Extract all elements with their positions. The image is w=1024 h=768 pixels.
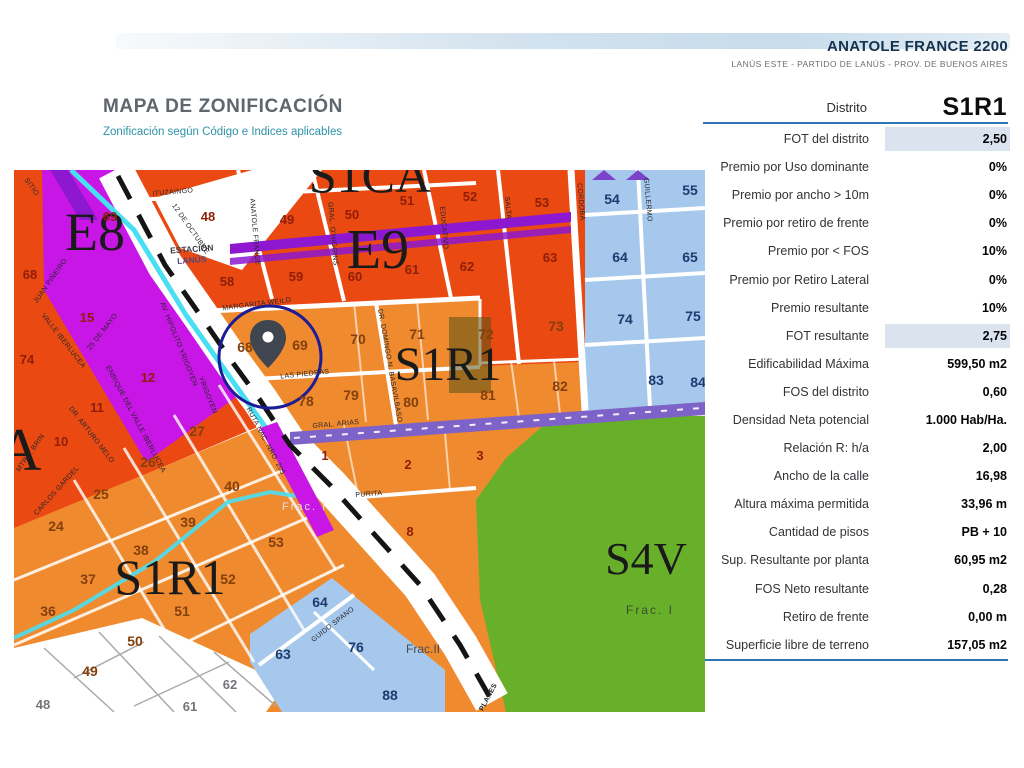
table-row: Cantidad de pisosPB + 10: [703, 518, 1010, 546]
parcel-number: 63: [275, 646, 291, 662]
zoning-indicators-panel: Distrito S1R1 FOT del distrito2,50 Premi…: [703, 92, 1010, 661]
table-row: Superficie libre de terreno157,05 m2: [703, 631, 1010, 659]
parcel-number: 68: [237, 339, 253, 355]
table-row: Altura máxima permitida33,96 m: [703, 490, 1010, 518]
parcel-number: 72: [478, 326, 494, 342]
parcel-number: 49: [82, 663, 98, 679]
table-row: Premio por Retiro Lateral0%: [703, 265, 1010, 293]
parcel-number: 70: [350, 331, 366, 347]
parcel-number: 83: [648, 372, 664, 388]
frac-label-road: Frac. I: [282, 501, 327, 513]
parcel-number: 68: [23, 267, 37, 282]
station-name-line2: LANÚS: [177, 253, 207, 266]
panel-bottom-rule: [703, 659, 1008, 661]
parcel-number: 62: [460, 259, 474, 274]
property-address: ANATOLE FRANCE 2200: [508, 38, 1008, 55]
parcel-number: 65: [682, 249, 698, 265]
parcel-number: 76: [348, 639, 364, 655]
district-row: Distrito S1R1: [703, 92, 1010, 122]
district-value: S1R1: [883, 93, 1010, 122]
listing-zoning-sheet: ANATOLE FRANCE 2200 LANÚS ESTE - PARTIDO…: [0, 0, 1024, 768]
table-row: Premio por Uso dominante0%: [703, 153, 1010, 181]
zone-label-s1r1-mid: S1R1: [395, 338, 502, 391]
parcel-number: 26: [140, 454, 156, 470]
parcel-number: 81: [480, 387, 496, 403]
parcel-number: 71: [409, 326, 425, 342]
parcel-number: 39: [180, 514, 196, 530]
table-row: Densidad Neta potencial1.000 Hab/Ha.: [703, 406, 1010, 434]
page-subtitle: Zonificación según Código e Indices apli…: [103, 126, 342, 138]
panel-top-rule: [703, 122, 1008, 124]
parcel-number: 36: [40, 603, 56, 619]
parcel-number: 38: [133, 542, 149, 558]
table-row: Sup. Resultante por planta60,95 m2: [703, 546, 1010, 574]
parcel-number: 52: [463, 189, 477, 204]
parcel-number: 75: [685, 308, 701, 324]
parcel-number: 80: [403, 394, 419, 410]
parcel-number: 82: [552, 378, 568, 394]
parcel-number: 54: [604, 191, 620, 207]
parcel-number: 62: [223, 677, 237, 692]
parcel-number: 3: [476, 448, 483, 463]
parcel-number: 64: [612, 249, 628, 265]
property-location: LANÚS ESTE - PARTIDO DE LANÚS - PROV. DE…: [408, 59, 1008, 69]
parcel-number: 58: [220, 274, 234, 289]
parcel-number: 63: [543, 250, 557, 265]
parcel-number: 2: [404, 457, 411, 472]
table-row: Relación R: h/a2,00: [703, 434, 1010, 462]
parcel-number: 55: [682, 182, 698, 198]
table-row: Retiro de frente0,00 m: [703, 603, 1010, 631]
parcel-number: 51: [400, 193, 414, 208]
location-pin-hole: [263, 332, 274, 343]
parcel-number: 11: [90, 400, 104, 415]
frac-label-ii: Frac.II: [406, 642, 440, 656]
parcel-number: 49: [280, 212, 294, 227]
parcel-number: 40: [224, 478, 240, 494]
parcel-number: 79: [343, 387, 359, 403]
table-row: Edificabilidad Máxima599,50 m2: [703, 350, 1010, 378]
table-row: Premio resultante10%: [703, 294, 1010, 322]
parcel-number: 1: [321, 448, 328, 463]
parcel-number: 8: [406, 524, 413, 539]
table-row: FOT del distrito2,50: [703, 125, 1010, 153]
zone-label-s1r1-sw: S1R1: [114, 549, 225, 605]
parcel-number: 53: [268, 534, 284, 550]
parcel-number: 24: [48, 518, 64, 534]
parcel-number: 15: [80, 310, 94, 325]
indicator-rows: FOT del distrito2,50 Premio por Uso domi…: [703, 125, 1010, 659]
table-row: Premio por < FOS10%: [703, 237, 1010, 265]
parcel-number: 69: [292, 337, 308, 353]
parcel-number: 52: [220, 571, 236, 587]
parcel-number: 51: [174, 603, 190, 619]
parcel-number: 84: [690, 374, 705, 390]
zoning-map: E8 E9 S1CA S1R1 S1R1 S4V A Frac. I Frac.…: [14, 170, 705, 712]
parcel-number: 59: [289, 269, 303, 284]
parcel-number: 53: [535, 195, 549, 210]
parcel-number: 74: [617, 311, 633, 327]
parcel-number: 25: [93, 486, 109, 502]
parcel-number: 69: [103, 209, 117, 224]
table-row: FOS del distrito0,60: [703, 378, 1010, 406]
parcel-number: 60: [348, 269, 362, 284]
parcel-number: 73: [548, 318, 564, 334]
parcel-number: 37: [80, 571, 96, 587]
parcel-number: 88: [382, 687, 398, 703]
parcel-number: 48: [201, 209, 215, 224]
table-row: FOS Neto resultante0,28: [703, 575, 1010, 603]
parcel-number: 27: [189, 423, 205, 439]
parcel-number: 50: [127, 633, 143, 649]
page-title: MAPA DE ZONIFICACIÓN: [103, 96, 343, 118]
parcel-number: 64: [312, 594, 328, 610]
parcel-number: 78: [298, 393, 314, 409]
parcel-number: 12: [141, 370, 155, 385]
parcel-number: 48: [36, 697, 50, 712]
table-row: Ancho de la calle16,98: [703, 462, 1010, 490]
table-row: Premio por ancho > 10m0%: [703, 181, 1010, 209]
table-row: Premio por retiro de frente0%: [703, 209, 1010, 237]
parcel-number: 10: [54, 434, 68, 449]
district-label: Distrito: [703, 100, 883, 115]
parcel-number: 50: [345, 207, 359, 222]
parcel-number: 61: [183, 699, 197, 712]
parcel-number: 74: [20, 352, 35, 367]
parcel-number: 61: [405, 262, 419, 277]
frac-label-green: Frac. I: [626, 603, 674, 617]
table-row: FOT resultante2,75: [703, 322, 1010, 350]
zoning-map-svg: E8 E9 S1CA S1R1 S1R1 S4V A Frac. I Frac.…: [14, 170, 705, 712]
zone-label-s4v: S4V: [605, 533, 687, 584]
